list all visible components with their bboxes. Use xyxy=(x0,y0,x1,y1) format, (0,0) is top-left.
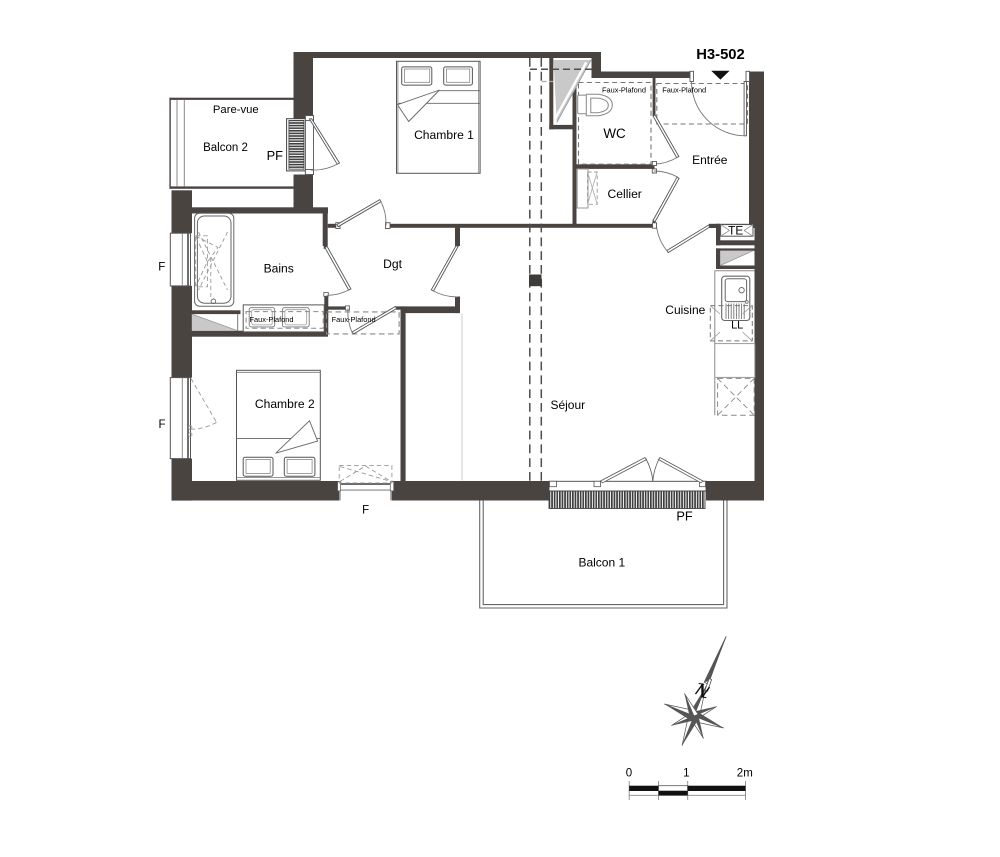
svg-text:Entrée: Entrée xyxy=(692,153,728,167)
svg-text:Cuisine: Cuisine xyxy=(665,303,705,317)
svg-text:LL: LL xyxy=(731,320,743,332)
svg-text:Bains: Bains xyxy=(264,261,294,275)
svg-text:TE: TE xyxy=(728,223,743,237)
svg-text:Faux-Plafond: Faux-Plafond xyxy=(602,86,646,95)
svg-text:PF: PF xyxy=(676,508,693,523)
svg-text:F: F xyxy=(158,261,165,273)
svg-text:H3-502: H3-502 xyxy=(696,47,745,63)
svg-text:F: F xyxy=(362,505,369,517)
svg-text:F: F xyxy=(158,419,165,431)
svg-text:Cellier: Cellier xyxy=(608,187,642,201)
svg-text:Pare-vue: Pare-vue xyxy=(213,104,259,116)
svg-text:1: 1 xyxy=(683,768,689,780)
svg-text:Faux-Plafond: Faux-Plafond xyxy=(250,315,294,324)
svg-text:Balcon 1: Balcon 1 xyxy=(578,555,625,569)
svg-text:Séjour: Séjour xyxy=(550,398,585,412)
svg-text:WC: WC xyxy=(603,126,626,141)
svg-text:PF: PF xyxy=(267,148,284,163)
svg-text:0: 0 xyxy=(626,768,632,780)
svg-text:Faux-Plafond: Faux-Plafond xyxy=(662,86,706,95)
svg-text:Faux-Plafond: Faux-Plafond xyxy=(332,315,376,324)
svg-text:2m: 2m xyxy=(737,768,753,780)
svg-text:Dgt: Dgt xyxy=(383,257,402,271)
svg-text:Balcon 2: Balcon 2 xyxy=(203,142,248,154)
svg-text:Chambre 1: Chambre 1 xyxy=(414,128,474,142)
svg-text:Chambre 2: Chambre 2 xyxy=(255,397,315,411)
